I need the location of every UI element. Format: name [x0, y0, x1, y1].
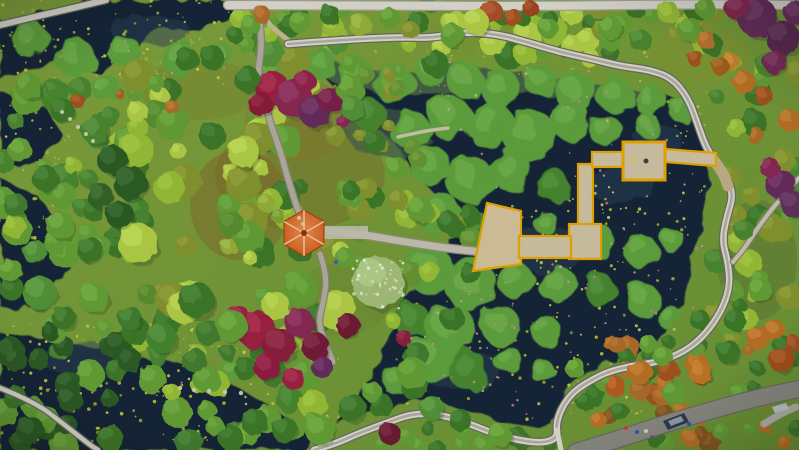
vignette: [0, 0, 799, 450]
aerial-park-photo: [0, 0, 799, 450]
scene-svg: [0, 0, 799, 450]
